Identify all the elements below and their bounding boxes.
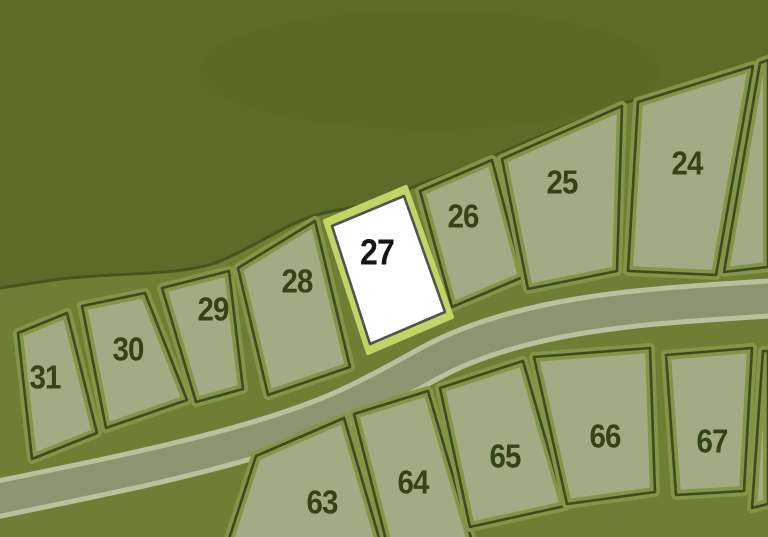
lot-67-label: 67 [697,423,728,460]
lot-31-label: 31 [30,359,62,396]
lot-24-label: 24 [672,145,704,182]
plat-map: 24 25 26 27 28 29 30 31 63 64 65 66 67 [0,0,768,537]
lot-63-label: 63 [307,484,339,521]
lot-27-label: 27 [360,232,394,273]
lot-66-label: 66 [590,418,622,455]
lot-29-label: 29 [198,291,230,328]
lot-26-label: 26 [448,198,480,235]
hillside-shade-patch [200,10,660,130]
lot-25-label: 25 [547,164,579,201]
lot-65-label: 65 [490,438,522,475]
lot-28-label: 28 [282,263,314,300]
lot-30-label: 30 [113,331,144,368]
plat-map-svg: 24 25 26 27 28 29 30 31 63 64 65 66 67 [0,0,768,537]
lot-67[interactable] [666,348,752,495]
lot-64-label: 64 [398,464,430,501]
lot-67-parcel [666,348,752,495]
